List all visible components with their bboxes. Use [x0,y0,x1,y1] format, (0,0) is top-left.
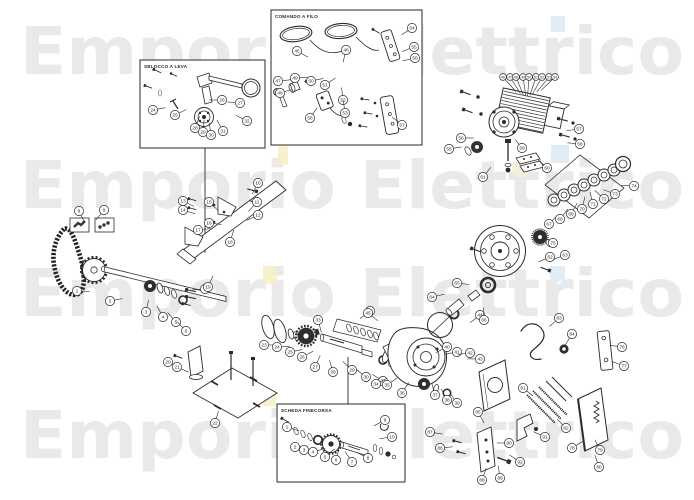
svg-text:35: 35 [384,383,390,389]
svg-text:54: 54 [553,75,557,79]
svg-text:8: 8 [78,209,81,215]
svg-text:58: 58 [307,116,313,122]
svg-text:10: 10 [255,181,261,187]
svg-text:57: 57 [576,127,582,133]
svg-text:77: 77 [621,364,627,370]
svg-text:10: 10 [389,435,395,441]
svg-text:3: 3 [303,448,306,454]
svg-text:48: 48 [277,91,283,97]
svg-text:25: 25 [287,350,293,356]
svg-text:57: 57 [399,123,405,129]
svg-text:6: 6 [335,458,338,464]
callout: 27 [310,356,320,372]
svg-text:25: 25 [172,113,178,119]
svg-text:68: 68 [557,217,563,223]
inset-sblocco-label: SBLOCCO A LEVA [144,64,188,69]
svg-text:42: 42 [467,351,473,357]
svg-text:45: 45 [294,49,300,55]
svg-text:33: 33 [315,318,321,324]
svg-text:17: 17 [195,228,201,234]
svg-text:24: 24 [150,108,156,114]
svg-text:70: 70 [579,207,585,213]
svg-text:69: 69 [568,212,574,218]
svg-text:73: 73 [612,192,618,198]
svg-text:30: 30 [363,375,369,381]
inset-scheda-label: SCHEDA FINECORSA [281,408,332,413]
inset-comando-label: COMANDO A FILO [275,14,318,19]
svg-text:5: 5 [324,455,327,461]
svg-text:45: 45 [365,311,371,317]
svg-text:22: 22 [212,421,218,427]
svg-text:88: 88 [479,478,485,484]
svg-text:4: 4 [162,315,165,321]
svg-text:20: 20 [165,360,171,366]
svg-text:53: 53 [547,75,551,79]
terminal-box [544,106,564,129]
svg-text:9: 9 [384,418,387,424]
callout: 29 [343,361,357,374]
svg-text:50: 50 [527,75,531,79]
svg-text:51: 51 [534,75,538,79]
svg-text:52: 52 [540,75,544,79]
svg-text:72: 72 [601,197,607,203]
svg-text:5: 5 [175,320,178,326]
svg-text:76: 76 [619,345,625,351]
callout: 30 [356,369,371,381]
svg-text:53: 53 [342,111,348,117]
svg-text:19: 19 [205,285,211,291]
motor-flange [489,107,519,137]
svg-text:3: 3 [145,310,148,316]
svg-text:82: 82 [563,426,569,432]
svg-text:65: 65 [454,281,460,287]
svg-text:27: 27 [312,365,318,371]
svg-text:46: 46 [501,75,505,79]
svg-text:71: 71 [590,202,596,208]
svg-text:80: 80 [596,465,602,471]
svg-text:1: 1 [76,289,79,295]
svg-text:79: 79 [597,448,603,454]
svg-text:64: 64 [429,295,435,301]
svg-text:28: 28 [192,126,198,132]
svg-text:60: 60 [544,166,550,172]
svg-text:37: 37 [432,393,438,399]
svg-text:2: 2 [294,445,297,451]
svg-text:55: 55 [446,147,452,153]
svg-text:48: 48 [514,75,518,79]
fastener-kit-right [95,218,114,232]
svg-text:87: 87 [427,430,433,436]
svg-text:58: 58 [577,142,583,148]
side-plate-tall [597,330,613,370]
svg-text:51: 51 [322,83,328,89]
svg-text:40: 40 [444,345,450,351]
svg-text:91: 91 [542,435,548,441]
parts-diagram: Emporio Elettrico Emporio Elettrico Empo… [0,0,694,500]
svg-text:78: 78 [569,446,575,452]
svg-text:29: 29 [349,368,355,374]
callout: 21 [172,362,188,372]
svg-text:74: 74 [631,184,637,190]
svg-text:38: 38 [444,398,450,404]
svg-text:66: 66 [481,318,487,324]
svg-text:75: 75 [550,241,556,247]
svg-text:1: 1 [286,425,289,431]
svg-text:13: 13 [180,199,186,205]
callout: 26 [297,351,313,361]
svg-text:43: 43 [477,357,483,363]
drive-gear [296,326,316,346]
callout: 36 [397,382,409,397]
svg-text:83: 83 [556,316,562,322]
svg-text:2: 2 [109,299,112,305]
callout: 81 [518,383,532,395]
svg-text:63: 63 [562,253,568,259]
svg-text:4: 4 [312,450,315,456]
svg-text:81: 81 [520,386,526,392]
callout: 56 [456,133,473,142]
svg-text:23: 23 [261,343,267,349]
svg-text:84: 84 [569,332,575,338]
svg-text:24: 24 [274,345,280,351]
callout: 77 [612,361,628,370]
svg-text:28: 28 [330,370,336,376]
svg-text:61: 61 [480,175,486,181]
svg-text:21: 21 [174,365,180,371]
svg-text:9: 9 [103,208,106,214]
svg-text:47: 47 [275,79,281,85]
svg-text:26: 26 [299,355,305,361]
watermark-row-3: Emporio Elettrico [20,255,684,332]
svg-text:26: 26 [219,98,225,104]
svg-text:15: 15 [206,200,212,206]
svg-text:62: 62 [547,255,553,261]
svg-text:8: 8 [367,456,370,462]
callout: 57 [567,124,584,133]
svg-text:56: 56 [458,136,464,142]
svg-text:50: 50 [308,79,314,85]
svg-text:56: 56 [412,56,418,62]
svg-text:55: 55 [411,45,417,51]
callout: 76 [610,342,627,351]
svg-text:27: 27 [237,101,243,107]
svg-text:46: 46 [343,48,349,54]
svg-text:31: 31 [220,129,226,135]
svg-text:39: 39 [454,401,460,407]
svg-text:11: 11 [255,200,260,206]
svg-text:32: 32 [244,119,250,125]
svg-text:59: 59 [519,146,525,152]
svg-text:16: 16 [206,221,212,227]
svg-text:30: 30 [208,133,214,139]
svg-text:67: 67 [546,222,552,228]
svg-text:34: 34 [373,382,379,388]
svg-text:12: 12 [255,213,261,219]
fastener-kit-left [70,218,89,232]
svg-text:92: 92 [517,460,523,466]
svg-text:6: 6 [185,329,188,335]
svg-text:85: 85 [475,410,481,416]
svg-text:89: 89 [497,476,503,482]
svg-text:14: 14 [180,208,186,214]
callout: 28 [328,360,337,377]
output-flange [475,226,526,277]
svg-text:49: 49 [292,76,298,82]
svg-text:47: 47 [508,75,512,79]
svg-text:7: 7 [351,460,354,466]
svg-text:41: 41 [454,350,460,356]
svg-text:36: 36 [399,391,405,397]
svg-text:90: 90 [506,441,512,447]
svg-text:86: 86 [437,446,443,452]
svg-text:49: 49 [521,75,525,79]
svg-text:54: 54 [409,26,415,32]
svg-text:18: 18 [227,240,233,246]
svg-text:29: 29 [200,130,206,136]
